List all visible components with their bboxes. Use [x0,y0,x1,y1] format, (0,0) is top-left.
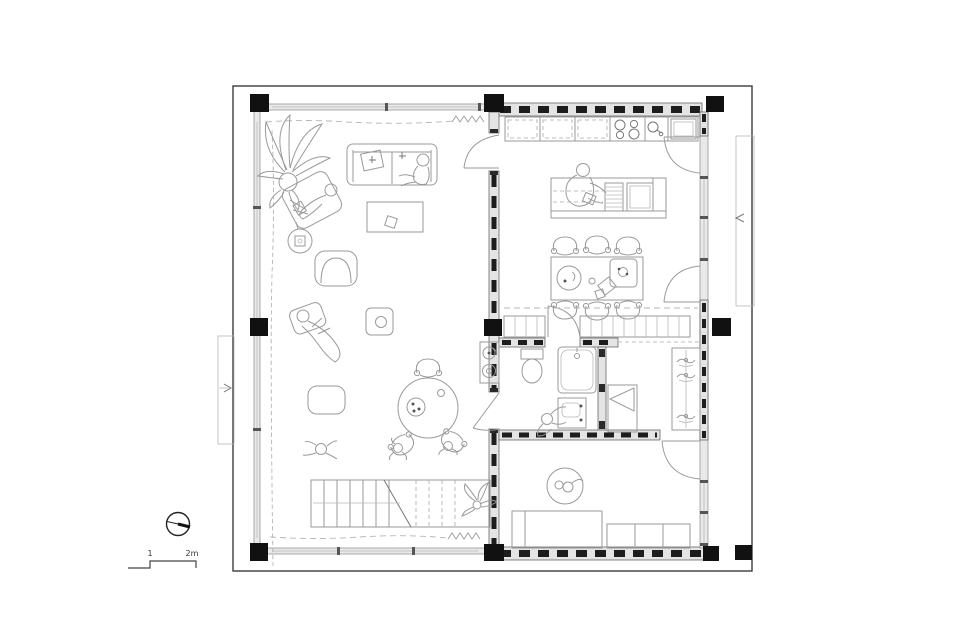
highchair [610,259,637,287]
tall-cabinet-fridge [671,119,696,139]
wall-east [700,112,708,548]
storage-counter-band [504,308,698,337]
round-rug-cat [547,468,583,504]
dining-table [551,236,643,320]
floor-plan-page: 1 2m [0,0,960,639]
wall-top-right-unit [496,103,702,116]
living-window-wall-bottom [260,547,488,555]
toilet [521,349,543,383]
single-bed [608,385,637,432]
person-at-island [566,164,606,207]
playing-child-1 [303,441,337,459]
wall-bath-bed-divider [598,347,606,431]
armchair [315,251,357,286]
door-living-hall [473,393,499,430]
wall-bathroom-top [499,338,700,347]
pouf [308,386,345,414]
kids-bed [512,511,602,548]
scale-tick-1: 1 [147,549,152,558]
scale-bar: 1 2m [128,549,199,568]
plant-corner [258,115,330,210]
north-indicator [167,513,191,536]
staircase [311,480,490,527]
kitchen-sink [648,122,663,136]
person-on-sofa [399,154,429,186]
kitchen-island [551,178,666,218]
wall-bottom-right-unit [496,547,708,560]
stove [615,120,639,139]
door-kitchen-living [464,135,499,168]
curtain-lines [266,116,484,566]
round-table [386,359,468,460]
kids-dresser [607,524,690,548]
floor-plan-canvas: 1 2m [0,0,960,639]
bathtub [558,347,596,393]
scale-tick-2m: 2m [186,549,199,558]
chaise-lounge-person [280,169,345,231]
sofa [347,144,437,185]
door-kidsroom [662,441,700,479]
coffee-table [367,202,423,232]
door-dining-east [664,266,700,302]
living-window-wall-top [260,103,488,111]
stool [366,308,393,335]
playing-child-3 [439,442,457,456]
exterior-left-panel [218,336,234,444]
floor-cushion-person [288,301,340,362]
wardrobe [672,348,700,430]
door-kitchen-east [664,137,700,173]
door-bathroom [548,306,580,337]
